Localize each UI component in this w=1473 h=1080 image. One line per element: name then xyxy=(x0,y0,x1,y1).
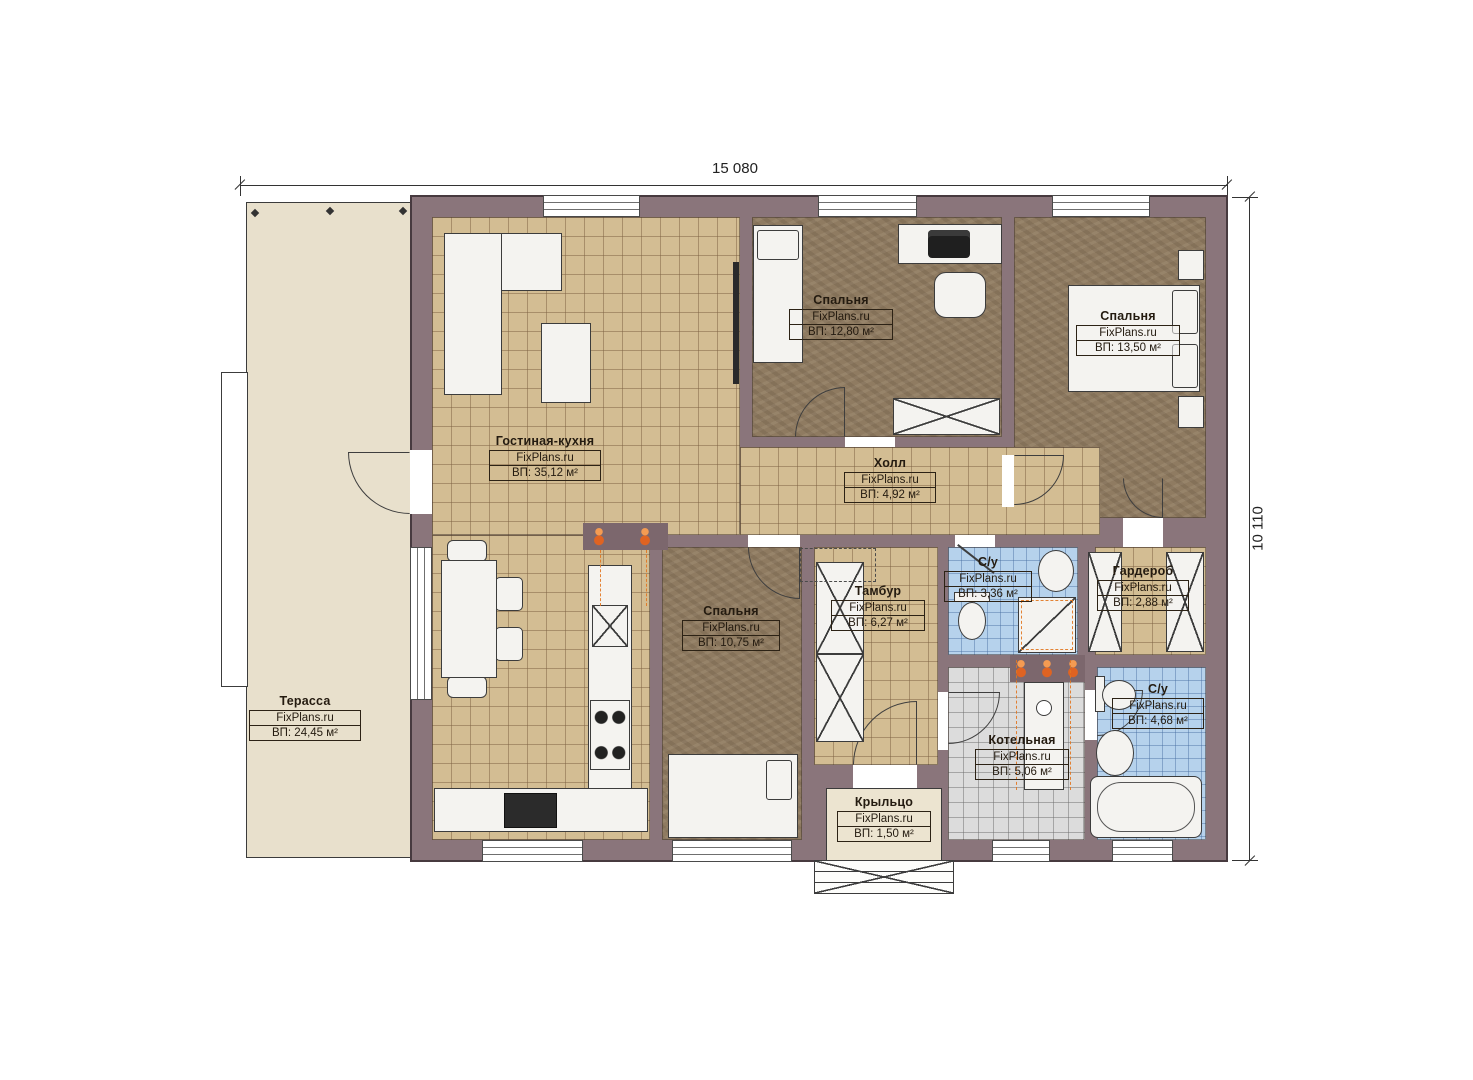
room-label-bedroom-right: Спальня FixPlans.ruВП: 13,50 м² xyxy=(1076,309,1180,356)
room-name: Гардероб xyxy=(1097,564,1189,578)
room-label-hall: Холл FixPlans.ruВП: 4,92 м² xyxy=(844,456,936,503)
room-label-wc-small: С/у FixPlans.ruВП: 3,36 м² xyxy=(944,555,1032,602)
room-area: ВП: 35,12 м² xyxy=(490,465,600,480)
room-area: ВП: 4,92 м² xyxy=(845,487,935,502)
room-label-porch: Крыльцо FixPlans.ruВП: 1,50 м² xyxy=(837,795,931,842)
window xyxy=(543,195,640,217)
dining-chair xyxy=(495,627,523,661)
flame-icon xyxy=(1016,659,1026,678)
stove xyxy=(590,700,630,770)
room-name: Спальня xyxy=(1076,309,1180,323)
dimension-ext-bottom xyxy=(1232,860,1258,861)
door-opening xyxy=(1002,455,1014,507)
room-label-wc-big: С/у FixPlans.ruВП: 4,68 м² xyxy=(1112,682,1204,729)
room-label-terrace: Терасса FixPlans.ruВП: 24,45 м² xyxy=(249,694,361,741)
window xyxy=(992,840,1050,862)
boiler-pipe xyxy=(1070,660,1071,790)
washbasin xyxy=(1096,730,1134,776)
room-name: Холл xyxy=(844,456,936,470)
watermark: FixPlans.ru xyxy=(790,310,892,324)
room-area: ВП: 13,50 м² xyxy=(1077,340,1179,355)
office-chair xyxy=(934,272,986,318)
attic-hatch xyxy=(800,548,876,582)
room-name: С/у xyxy=(1112,682,1204,696)
room-label-bedroom-top: Спальня FixPlans.ruВП: 12,80 м² xyxy=(789,293,893,340)
room-area: ВП: 4,68 м² xyxy=(1113,713,1203,728)
room-name: Терасса xyxy=(249,694,361,708)
window xyxy=(1112,840,1173,862)
dimension-ext-left xyxy=(240,176,241,196)
kitchen-sink xyxy=(504,793,557,828)
watermark: FixPlans.ru xyxy=(832,601,924,615)
flame-icon xyxy=(594,527,604,546)
room-name: Гостиная-кухня xyxy=(489,434,601,448)
door-opening xyxy=(410,450,432,514)
watermark: FixPlans.ru xyxy=(250,711,360,725)
room-label-living-kitchen: Гостиная-кухня FixPlans.ruВП: 35,12 м² xyxy=(489,434,601,481)
room-name: Спальня xyxy=(789,293,893,307)
pillow xyxy=(757,230,799,260)
window xyxy=(1052,195,1150,217)
room-name: Тамбур xyxy=(831,584,925,598)
dimension-height: 10 110 xyxy=(1250,489,1267,569)
watermark: FixPlans.ru xyxy=(845,473,935,487)
sofa-chaise xyxy=(444,233,502,395)
room-name: С/у xyxy=(944,555,1032,569)
porch-steps xyxy=(814,860,954,894)
floor-plan-sheet: 15 080 10 110 xyxy=(0,0,1473,1080)
room-area: ВП: 10,75 м² xyxy=(683,635,779,650)
wardrobe-unit xyxy=(893,398,1000,435)
shower-outline xyxy=(1021,600,1073,650)
room-area: ВП: 5,06 м² xyxy=(976,764,1068,779)
room-label-bedroom-bottom: Спальня FixPlans.ruВП: 10,75 м² xyxy=(682,604,780,651)
watermark: FixPlans.ru xyxy=(976,750,1068,764)
dimension-line-top xyxy=(240,185,1228,186)
door-opening xyxy=(938,692,948,750)
watermark: FixPlans.ru xyxy=(838,812,930,826)
toilet xyxy=(958,602,986,640)
room-name: Спальня xyxy=(682,604,780,618)
watermark: FixPlans.ru xyxy=(490,451,600,465)
terrace-hatch-column xyxy=(221,372,248,687)
room-area: ВП: 3,36 м² xyxy=(945,586,1031,601)
window xyxy=(482,840,583,862)
room-area: ВП: 24,45 м² xyxy=(250,725,360,740)
printer xyxy=(928,230,970,258)
room-area: ВП: 6,27 м² xyxy=(832,615,924,630)
pillow xyxy=(766,760,792,800)
flame-icon xyxy=(1042,659,1052,678)
window xyxy=(818,195,917,217)
boiler-dial xyxy=(1036,700,1052,716)
flame-icon xyxy=(640,527,650,546)
watermark: FixPlans.ru xyxy=(683,621,779,635)
dining-chair xyxy=(447,676,487,698)
door-opening xyxy=(1123,518,1163,547)
room-area: ВП: 2,88 м² xyxy=(1098,595,1188,610)
watermark: FixPlans.ru xyxy=(945,572,1031,586)
window xyxy=(672,840,792,862)
watermark: FixPlans.ru xyxy=(1113,699,1203,713)
bathtub-inner xyxy=(1097,782,1195,832)
room-area: ВП: 12,80 м² xyxy=(790,324,892,339)
dining-chair xyxy=(495,577,523,611)
room-name: Котельная xyxy=(975,733,1069,747)
window xyxy=(410,547,432,700)
door-opening xyxy=(845,437,895,447)
room-label-boiler: Котельная FixPlans.ruВП: 5,06 м² xyxy=(975,733,1069,780)
washbasin xyxy=(1038,550,1074,592)
room-label-tambur: Тамбур FixPlans.ruВП: 6,27 м² xyxy=(831,584,925,631)
dimension-ext-top xyxy=(1232,197,1258,198)
watermark: FixPlans.ru xyxy=(1098,581,1188,595)
nightstand xyxy=(1178,396,1204,428)
watermark: FixPlans.ru xyxy=(1077,326,1179,340)
room-label-wardrobe: Гардероб FixPlans.ruВП: 2,88 м² xyxy=(1097,564,1189,611)
tv xyxy=(733,262,739,384)
door-opening xyxy=(748,535,800,547)
dining-chair xyxy=(447,540,487,562)
room-area: ВП: 1,50 м² xyxy=(838,826,930,841)
terrace-deck xyxy=(246,202,412,858)
wardrobe-unit xyxy=(816,654,864,742)
kitchen-sink-unit xyxy=(592,605,628,647)
coffee-table xyxy=(541,323,591,403)
dining-table xyxy=(441,560,497,678)
dimension-ext-right xyxy=(1227,176,1228,196)
heating-pipe xyxy=(600,550,601,606)
nightstand xyxy=(1178,250,1204,280)
heating-pipe xyxy=(646,550,647,606)
room-name: Крыльцо xyxy=(837,795,931,809)
dimension-width: 15 080 xyxy=(635,160,835,177)
dimension-line-right xyxy=(1249,197,1250,861)
